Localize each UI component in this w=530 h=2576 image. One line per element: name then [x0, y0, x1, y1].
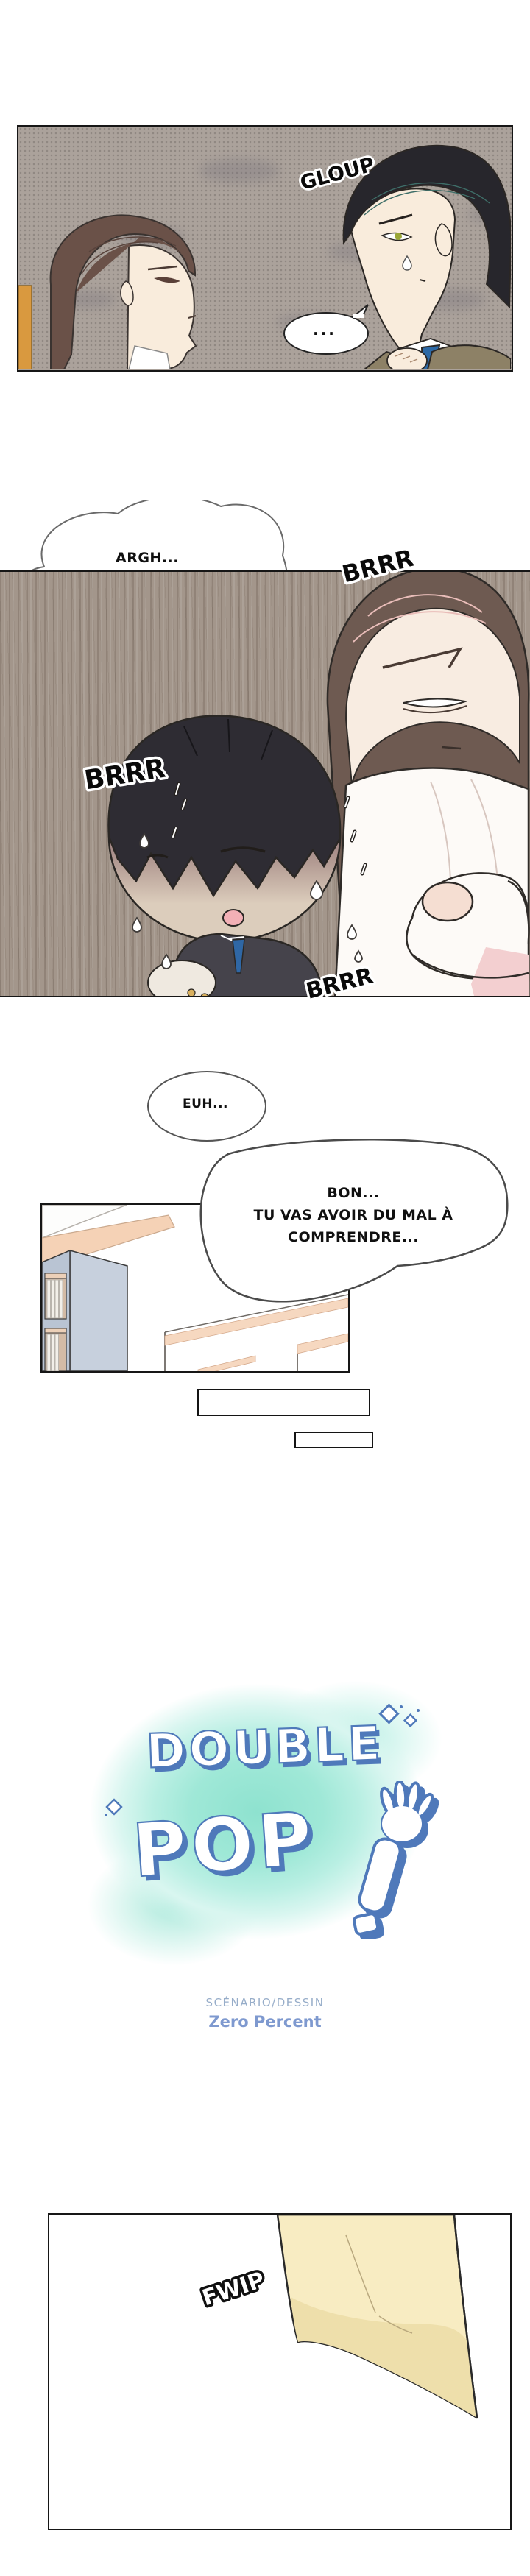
empty-sfx-box-1: [197, 1389, 370, 1416]
sfx-gloup: GLOUP: [286, 147, 389, 199]
waving-arm-icon: [353, 1781, 456, 1939]
sfx-brrr-left: BRRR: [68, 745, 185, 807]
speech-bubble-silence-text: ...: [283, 321, 366, 339]
speech-bubble-bon-text: BON... TU VAS AVOIR DU MAL À COMPRENDRE.…: [243, 1182, 464, 1248]
sfx-brrr-top: BRRR: [333, 539, 428, 598]
svg-text:BRRR: BRRR: [339, 544, 417, 589]
door-frame-strip: [18, 286, 32, 369]
robe-character: [328, 572, 529, 997]
svg-text:GLOUP: GLOUP: [298, 153, 378, 195]
sfx-fwip: FWIP: [188, 2258, 291, 2324]
svg-text:BRRR: BRRR: [82, 754, 168, 796]
speech-bubble-euh-text: EUH...: [147, 1097, 264, 1111]
speech-bubble-tail: [352, 303, 371, 318]
bookshelf: [42, 1250, 127, 1371]
empty-sfx-box-2: [294, 1432, 373, 1448]
sparkle-icon: [377, 1702, 428, 1738]
svg-text:FWIP: FWIP: [199, 2267, 268, 2311]
webtoon-page: GLOUP ... ARGH... ILS ME POSENT TOUS LES…: [0, 0, 530, 2576]
hanging-paper: [278, 2215, 477, 2418]
credit-name: Zero Percent: [0, 2013, 530, 2031]
panel-1-art: [18, 127, 511, 369]
svg-text:BRRR: BRRR: [303, 963, 375, 1004]
credit-role: SCÉNARIO/DESSIN: [0, 1996, 530, 2009]
sparkle-icon-left: [102, 1794, 131, 1824]
panel-1: [17, 125, 513, 372]
left-character: [51, 215, 196, 369]
sfx-brrr-bottom: BRRR: [296, 958, 392, 1013]
title-watercolor-background: DOUBLE POP: [59, 1656, 471, 2002]
